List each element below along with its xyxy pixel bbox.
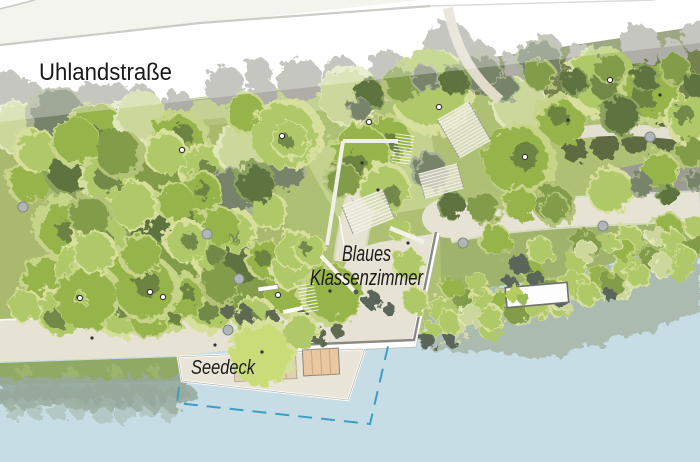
svg-text:Blaues: Blaues bbox=[342, 241, 391, 266]
svg-text:Seedeck: Seedeck bbox=[191, 357, 256, 379]
svg-text:Uhlandstraße: Uhlandstraße bbox=[39, 59, 172, 86]
svg-text:Klassenzimmer: Klassenzimmer bbox=[310, 265, 424, 290]
